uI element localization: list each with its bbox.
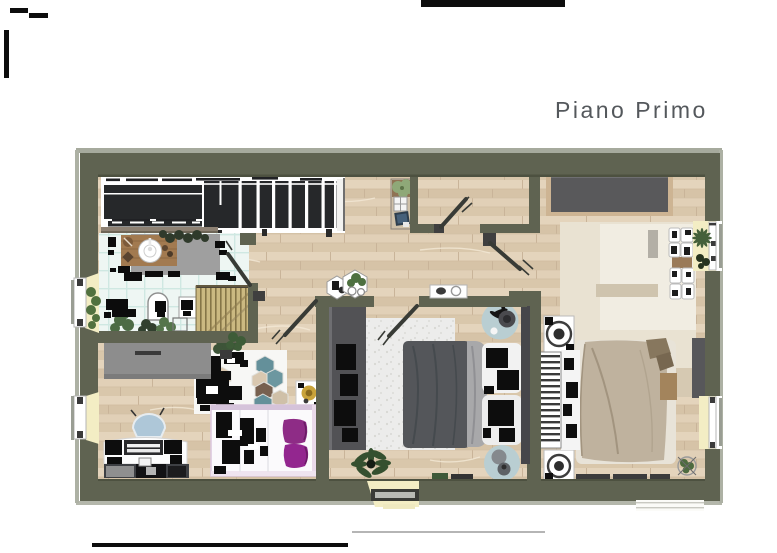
svg-text:Piano Primo: Piano Primo bbox=[555, 97, 708, 123]
